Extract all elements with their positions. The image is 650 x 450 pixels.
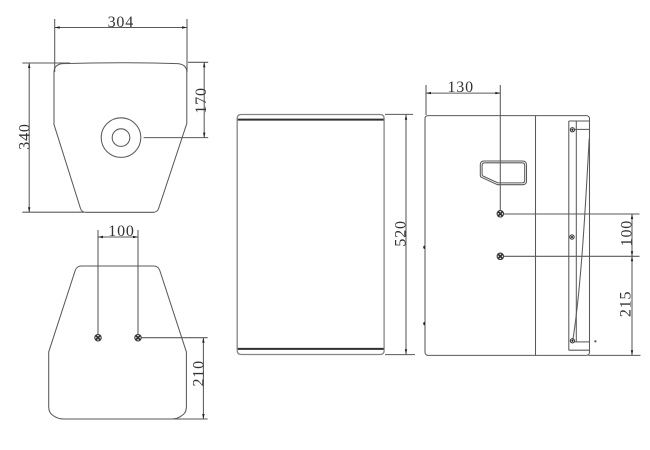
svg-text:304: 304 — [108, 14, 134, 31]
svg-text:215: 215 — [618, 291, 635, 317]
svg-text:130: 130 — [447, 79, 473, 96]
svg-text:100: 100 — [108, 223, 134, 240]
svg-text:210: 210 — [191, 360, 208, 386]
svg-text:340: 340 — [17, 123, 34, 149]
svg-text:100: 100 — [619, 220, 636, 246]
svg-text:170: 170 — [193, 87, 210, 113]
svg-text:520: 520 — [393, 220, 410, 246]
